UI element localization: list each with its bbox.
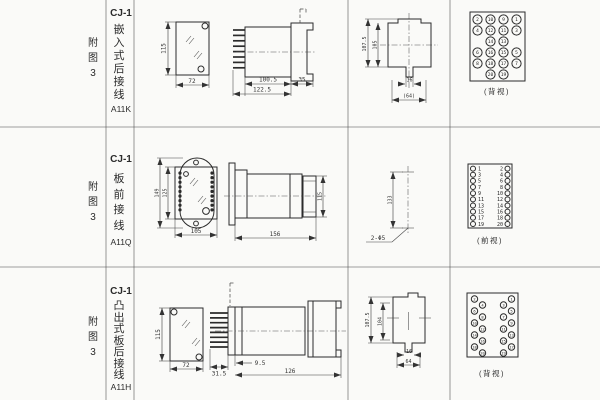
row3-figure-label: 附图3 [86,315,100,360]
terminal-pin [505,221,510,226]
terminal-number: 19 [501,72,507,78]
row2-front-wired-drawings: 149 125 105 115 156 [155,158,513,245]
terminal-number: 18 [497,216,503,222]
terminal-number: 13 [509,332,514,337]
terminal-number: 14 [488,39,494,45]
terminal-number: 10 [497,191,503,197]
terminal-pin [471,191,476,196]
dim-label: 100.5 [259,77,277,84]
terminal-number: 18 [488,61,494,67]
terminal-zigzag: 2468101214161820135791113151719 [471,296,514,356]
dim-label: 72 [182,362,190,369]
terminal-number: 4 [500,173,503,179]
row2-figure-label: 附图3 [86,180,100,225]
terminal-number: 3 [478,173,481,179]
terminal-number: 16 [497,209,503,215]
terminal-pin [505,197,510,202]
terminal-number: 2 [500,166,503,172]
row3-projecting-mount-drawings: 115 72 31.5 9.5 [155,283,518,378]
row1-model-label: A11K [107,104,135,114]
row2-side-view: 115 156 [224,163,327,241]
terminal-number: 20 [497,222,503,228]
mount-hole [198,66,204,72]
terminal-number: 13 [501,39,507,45]
dim-label: 105 [191,228,202,235]
terminal-number: 7 [502,314,504,319]
terminal-pin [471,209,476,214]
view-caption: (背视) [484,86,510,96]
terminal-number: 15 [501,338,506,343]
terminal-number: 15 [478,209,484,215]
terminal-pin [505,172,510,177]
terminal-number: 5 [510,308,512,313]
terminal-number: 11 [501,28,507,34]
dim-label: 31.5 [212,371,227,378]
terminal-number: 19 [478,222,484,228]
terminal-number: 16 [488,50,494,56]
terminal-number: 17 [478,216,484,222]
terminal-number: 10 [472,320,477,325]
terminal-number: 12 [480,326,485,331]
dim-label: 156 [270,231,281,238]
terminal-number: 6 [476,50,479,56]
row3-drilling-plan: 107.5 104 16 64 [365,293,431,368]
terminal-number: 8 [500,185,503,191]
mount-hole [194,160,199,165]
terminal-number: 8 [481,314,484,319]
terminal-number: 2 [473,296,475,301]
row1-front-view: 115 72 [161,22,210,88]
dim-label: 72 [188,78,196,85]
dim-label: 115 [161,43,168,54]
terminal-pin [505,215,510,220]
terminal-number: 11 [478,197,484,203]
row3-mount-label: 凸出式板后接线 [112,301,126,382]
terminal-number: 7 [515,61,518,67]
view-caption: (前视) [477,235,503,245]
dim-label: 16 [406,78,412,84]
dim-label: 16 [406,349,412,355]
terminal-pin [505,203,510,208]
terminal-number: 17 [509,344,514,349]
terminal-number: 12 [488,28,494,34]
row2-mount-label: 板前接线 [112,172,126,234]
terminal-number: 20 [488,72,494,78]
terminal-number: 12 [497,197,503,203]
terminal-number: 9 [478,191,481,197]
row1-flush-mount-drawings: 115 72 100.5 122.5 35 [161,9,526,103]
dim-label: 126 [285,368,296,375]
terminal-number: 17 [501,61,507,67]
screw [203,208,210,215]
terminal-number: 14 [497,203,503,209]
dim-label: 133 [388,195,394,204]
terminal-grid: 2109141211314136161558181772019 [473,15,521,79]
terminal-number: 20 [480,350,485,355]
terminal-pin [505,209,510,214]
terminal-pin [505,191,510,196]
mount-hole [196,354,202,360]
view-caption: (背视) [479,368,505,378]
mount-hole [202,23,208,29]
dim-label: 35 [298,77,306,84]
dim-label: 125 [163,188,169,197]
dim-label: 104 [378,317,384,326]
terminal-columns: 1357911131517192468101214161820 [471,166,511,228]
terminal-number: 16 [480,338,485,343]
figure-page: 115 72 100.5 122.5 35 [0,0,600,400]
terminal-number: 9 [502,17,505,23]
terminal-number: 4 [481,302,484,307]
terminal-number: 1 [510,296,513,301]
terminal-number: 5 [478,179,481,185]
terminal-pin [505,185,510,190]
row1-side-view: 100.5 122.5 35 [233,9,316,96]
row3-model-label: A11H [107,382,135,392]
row1-figure-label: 附图3 [86,36,100,81]
dim-label: 115 [155,329,162,340]
terminal-pin [471,221,476,226]
terminal-number: 10 [488,17,494,23]
terminal-number: 6 [473,308,476,313]
dim-label: (64) [403,94,415,100]
terminal-number: 1 [515,17,518,23]
dim-label: 149 [155,188,161,197]
terminal-number: 5 [515,50,518,56]
dim-label: 64 [405,359,411,365]
hole-callout: 2-Φ5 [371,235,386,242]
terminal-number: 13 [478,203,484,209]
row3-terminal-back-view: 2468101214161820135791113151719 (背视) [467,293,518,378]
terminal-number: 3 [502,302,504,307]
row2-drilling-plan: 133 2-Φ5 [366,166,414,242]
row1-type-label: CJ-1 [108,8,134,19]
terminal-number: 11 [501,326,506,331]
terminal-number: 15 [501,50,507,56]
terminal-number: 1 [478,166,481,172]
row2-type-label: CJ-1 [108,154,134,165]
mount-hole [194,221,199,226]
screw [184,172,189,177]
row3-type-label: CJ-1 [108,286,134,297]
terminal-number: 8 [476,61,479,67]
dim-label: 9.5 [255,360,266,367]
row1-terminal-back-view: 2109141211314136161558181772019 (背视) [470,12,525,96]
terminal-pin [471,203,476,208]
terminal-pin [471,215,476,220]
row2-terminal-front-view: 1357911131517192468101214161820 (前视) [468,164,512,245]
dim-label: 105 [373,40,379,49]
terminal-pin [471,197,476,202]
dim-label: 107.5 [365,312,371,327]
row2-front-view: 149 125 105 [155,158,218,238]
terminal-number: 6 [500,179,503,185]
terminal-pin [505,178,510,183]
row2-model-label: A11Q [107,237,135,247]
terminal-number: 2 [476,17,479,23]
terminal-number: 3 [515,28,518,34]
terminal-pin [505,166,510,171]
row1-mount-label: 嵌入式后接线 [112,24,126,102]
terminal-number: 9 [510,320,513,325]
terminal-pin [471,185,476,190]
terminal-pin [471,178,476,183]
mount-hole [171,309,177,315]
row1-panel-cutout: 107.5 105 16 (64) [362,13,438,103]
terminal-number: 7 [478,185,481,191]
dim-label: 107.5 [362,36,368,51]
terminal-number: 4 [476,28,479,34]
terminal-pin [471,172,476,177]
dim-label: 115 [318,192,324,201]
row3-side-view: 31.5 9.5 126 [210,283,346,378]
row3-front-view: 115 72 [155,308,203,372]
terminal-number: 19 [501,350,506,355]
terminal-pin [471,166,476,171]
dim-label: 122.5 [253,87,271,94]
terminal-number: 18 [472,344,477,349]
terminal-number: 14 [472,332,477,337]
